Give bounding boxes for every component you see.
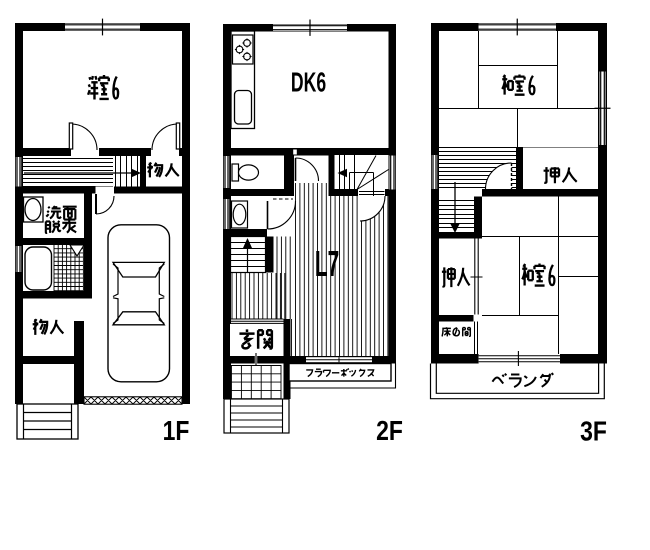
svg-text:1F: 1F [163,416,190,447]
svg-text:DK6: DK6 [291,66,326,97]
svg-text:L7: L7 [315,244,339,284]
svg-text:2F: 2F [376,416,403,447]
svg-text:3F: 3F [580,416,607,447]
